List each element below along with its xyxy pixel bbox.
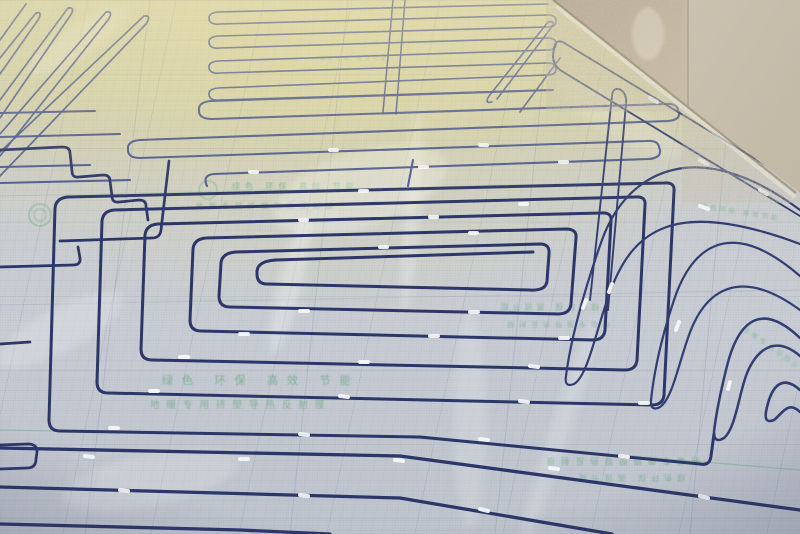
heating-photo-svg: 绿色 环保 高效 节能 地暖专用挤塑导热反射膜 绿色 环保 高效 节能 地暖专用… <box>0 0 800 534</box>
vignette <box>0 0 800 534</box>
heating-installation-photo: 绿色 环保 高效 节能 地暖专用挤塑导热反射膜 绿色 环保 高效 节能 地暖专用… <box>0 0 800 534</box>
